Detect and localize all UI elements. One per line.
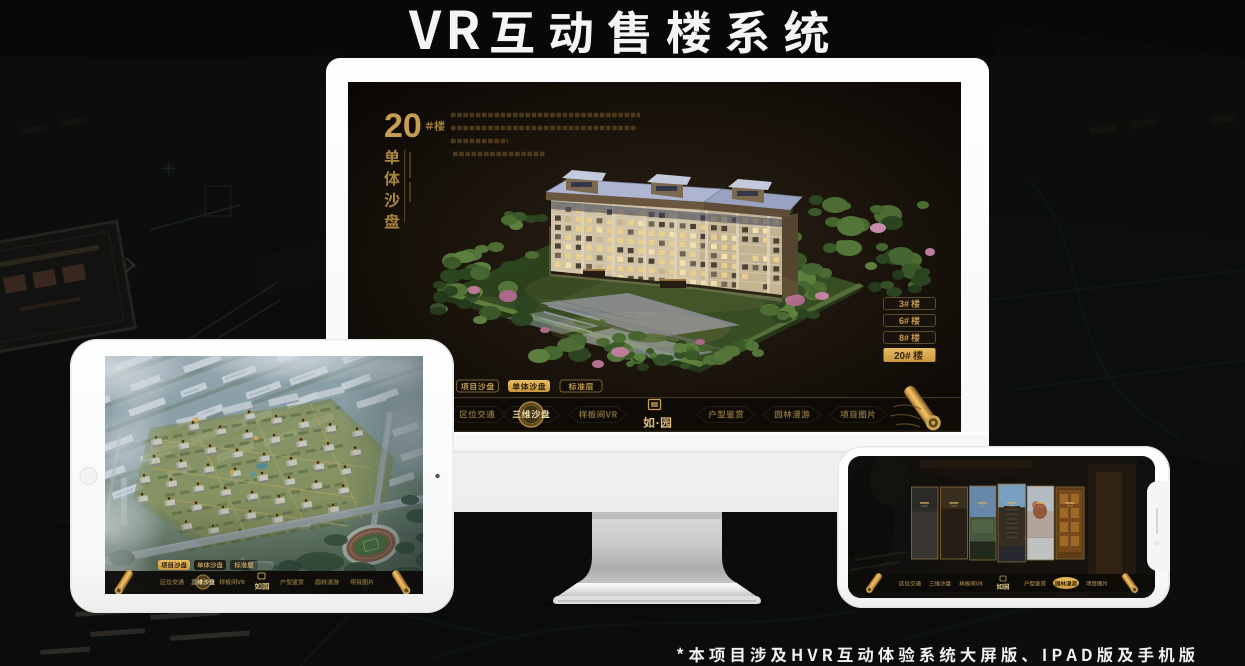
svg-text:3#: 3# — [899, 299, 909, 309]
svg-text:6#: 6# — [899, 316, 909, 326]
svg-text:8#: 8# — [899, 333, 909, 343]
svg-text:20: 20 — [384, 107, 422, 145]
svg-text:20#: 20# — [894, 351, 911, 362]
